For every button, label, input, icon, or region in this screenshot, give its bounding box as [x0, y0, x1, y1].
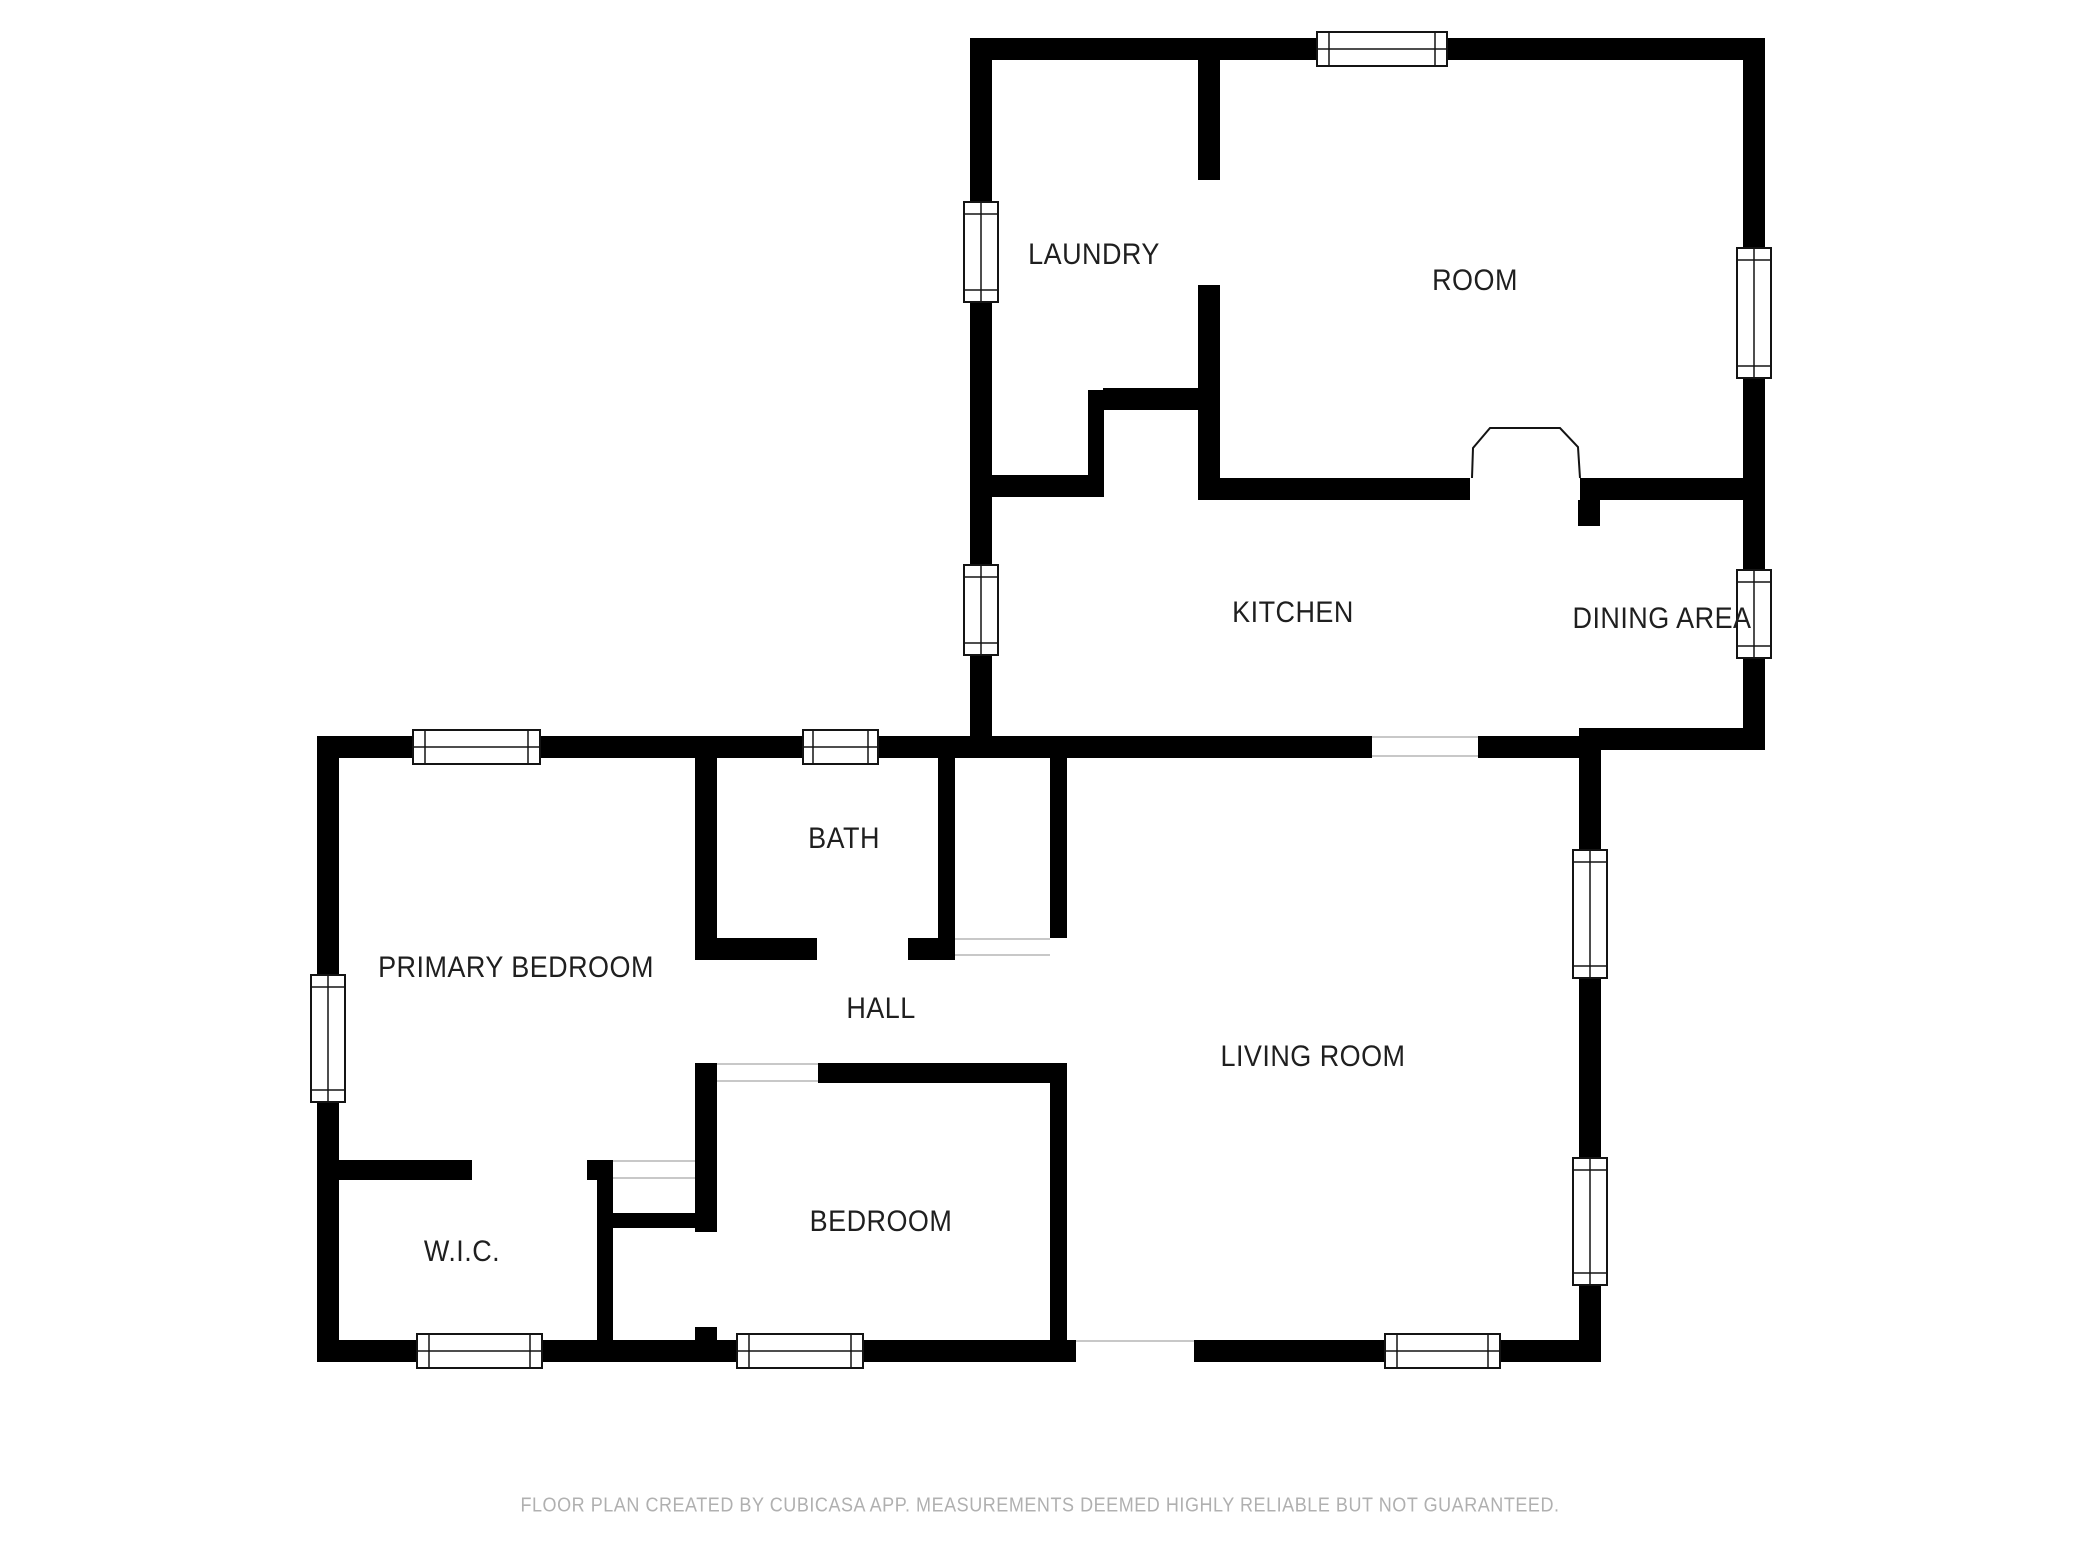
wall-segment	[1743, 38, 1765, 248]
wall-segment	[587, 1160, 613, 1180]
wall-segment	[970, 38, 992, 202]
room-label-living-room: LIVING ROOM	[1221, 1040, 1406, 1074]
wall-segment	[992, 736, 1372, 758]
wall-segment	[1050, 1065, 1067, 1340]
opening-hall-bedroom	[717, 1064, 818, 1081]
window-icon	[964, 565, 998, 655]
wall-segment	[1198, 478, 1470, 500]
opening-kitchen-living	[1372, 737, 1478, 756]
wall-segment	[1050, 753, 1067, 938]
wall-segment	[1103, 388, 1220, 410]
wall-segment	[818, 1063, 1067, 1083]
wall-segment	[540, 736, 803, 758]
wall-segment	[908, 938, 955, 960]
room-label-bedroom: BEDROOM	[810, 1205, 953, 1239]
wall-segment	[613, 1213, 717, 1228]
wall-segment	[695, 758, 717, 938]
wall-segment	[695, 1063, 717, 1232]
wall-segment	[542, 1340, 737, 1362]
upper-building-walls	[970, 38, 1765, 758]
bay-niche-icon	[1472, 428, 1580, 478]
window-icon	[964, 202, 998, 302]
floor-plan-page: LAUNDRY ROOM KITCHEN DINING AREA PRIMARY…	[0, 0, 2080, 1560]
wall-segment	[339, 1160, 472, 1180]
wall-segment	[1447, 38, 1765, 60]
wall-segment	[863, 1340, 1076, 1362]
opening-alcove	[955, 939, 1050, 955]
window-icon	[417, 1334, 542, 1368]
wall-segment	[1598, 728, 1765, 750]
wall-segment	[317, 736, 339, 975]
room-label-room: ROOM	[1432, 264, 1518, 298]
windows	[311, 32, 1771, 1368]
window-icon	[1385, 1334, 1500, 1368]
window-icon	[413, 730, 540, 764]
room-label-dining-area: DINING AREA	[1573, 602, 1752, 636]
window-icon	[803, 730, 878, 764]
wall-segment	[970, 655, 992, 758]
wall-segment	[938, 758, 955, 938]
window-icon	[1573, 850, 1607, 978]
cased-openings	[613, 737, 1478, 1341]
room-label-laundry: LAUNDRY	[1028, 238, 1160, 272]
wall-segment	[970, 38, 1317, 60]
wall-segment	[1194, 1340, 1385, 1362]
footer-disclaimer: FLOOR PLAN CREATED BY CUBICASA APP. MEAS…	[520, 1495, 1559, 1518]
wall-segment	[695, 1327, 717, 1340]
wall-segment	[1578, 500, 1600, 526]
wall-segment	[317, 1340, 417, 1362]
wall-segment	[597, 1180, 613, 1340]
opening-wic-closet	[613, 1161, 695, 1178]
room-label-primary-bedroom: PRIMARY BEDROOM	[378, 951, 654, 985]
wall-segment	[1579, 728, 1601, 850]
wall-segment	[1580, 478, 1743, 500]
room-label-hall: HALL	[846, 992, 915, 1026]
wall-segment	[878, 736, 973, 758]
wall-segment	[970, 302, 992, 565]
window-icon	[1573, 1158, 1607, 1285]
room-label-kitchen: KITCHEN	[1232, 596, 1354, 630]
wall-segment	[1198, 60, 1220, 180]
wall-segment	[695, 938, 817, 960]
window-icon	[737, 1334, 863, 1368]
window-icon	[311, 975, 345, 1102]
wall-segment	[317, 1102, 339, 1362]
window-icon	[1317, 32, 1447, 66]
lower-building-walls	[317, 728, 1601, 1362]
floor-plan-drawing	[0, 0, 2080, 1560]
wall-segment	[1743, 378, 1765, 570]
room-label-bath: BATH	[808, 822, 880, 856]
wall-segment	[1579, 978, 1601, 1158]
wall-segment	[1579, 1285, 1601, 1362]
window-icon	[1737, 248, 1771, 378]
wall-segment	[992, 475, 1104, 497]
room-label-wic: W.I.C.	[424, 1235, 500, 1269]
